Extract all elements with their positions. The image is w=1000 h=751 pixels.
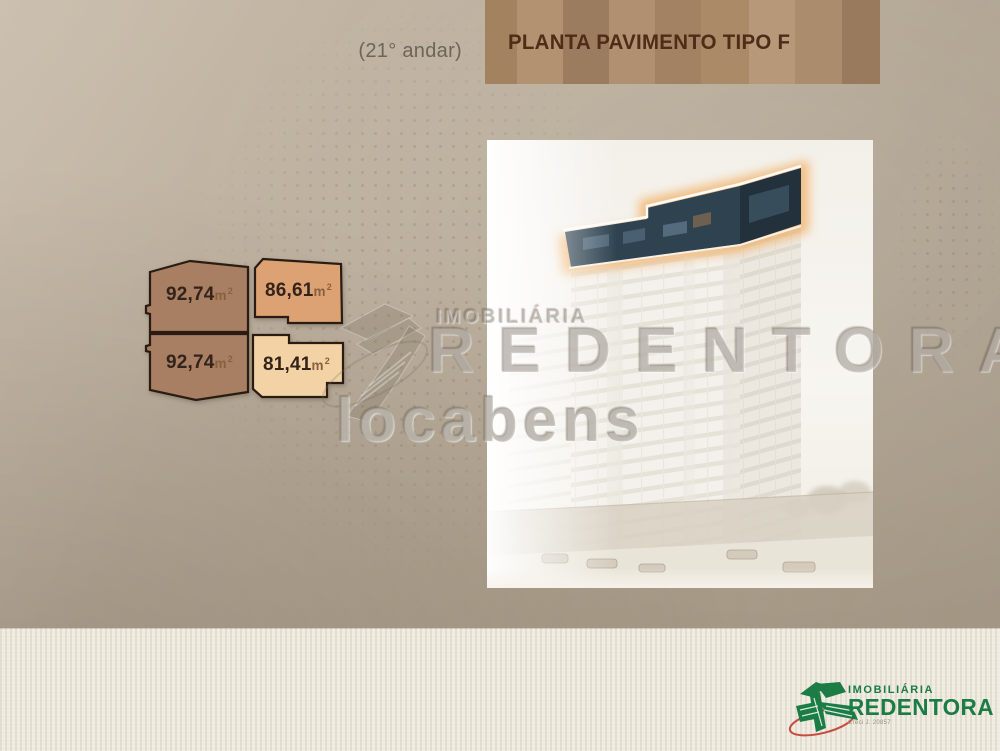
brochure-page: { "header": { "floor_note": "(21° andar)… [0, 0, 1000, 750]
unit-area-label: 81,41m2 [263, 354, 330, 376]
title-banner: PLANTA PAVIMENTO TIPO F [485, 0, 880, 84]
unit-area-label: 86,61m2 [265, 280, 332, 302]
unit-area-label: 92,74m2 [166, 284, 233, 306]
building-render-panel [487, 140, 873, 588]
footer-creci: Creci J. 20857 [848, 720, 997, 726]
unit-area-label: 92,74m2 [166, 352, 233, 374]
footer-logo-text: IMOBILIÁRIA REDENTORA Creci J. 20857 [848, 684, 997, 744]
footer-brand-large: REDENTORA [848, 696, 994, 719]
building-illustration [487, 140, 873, 588]
left-fade [487, 140, 617, 588]
bottom-fade [487, 568, 873, 588]
floor-note: (21° andar) [330, 40, 462, 63]
footer-logo: IMOBILIÁRIA REDENTORA Creci J. 20857 [786, 676, 997, 744]
dot-texture [895, 130, 1000, 360]
page-title: PLANTA PAVIMENTO TIPO F [485, 0, 880, 84]
